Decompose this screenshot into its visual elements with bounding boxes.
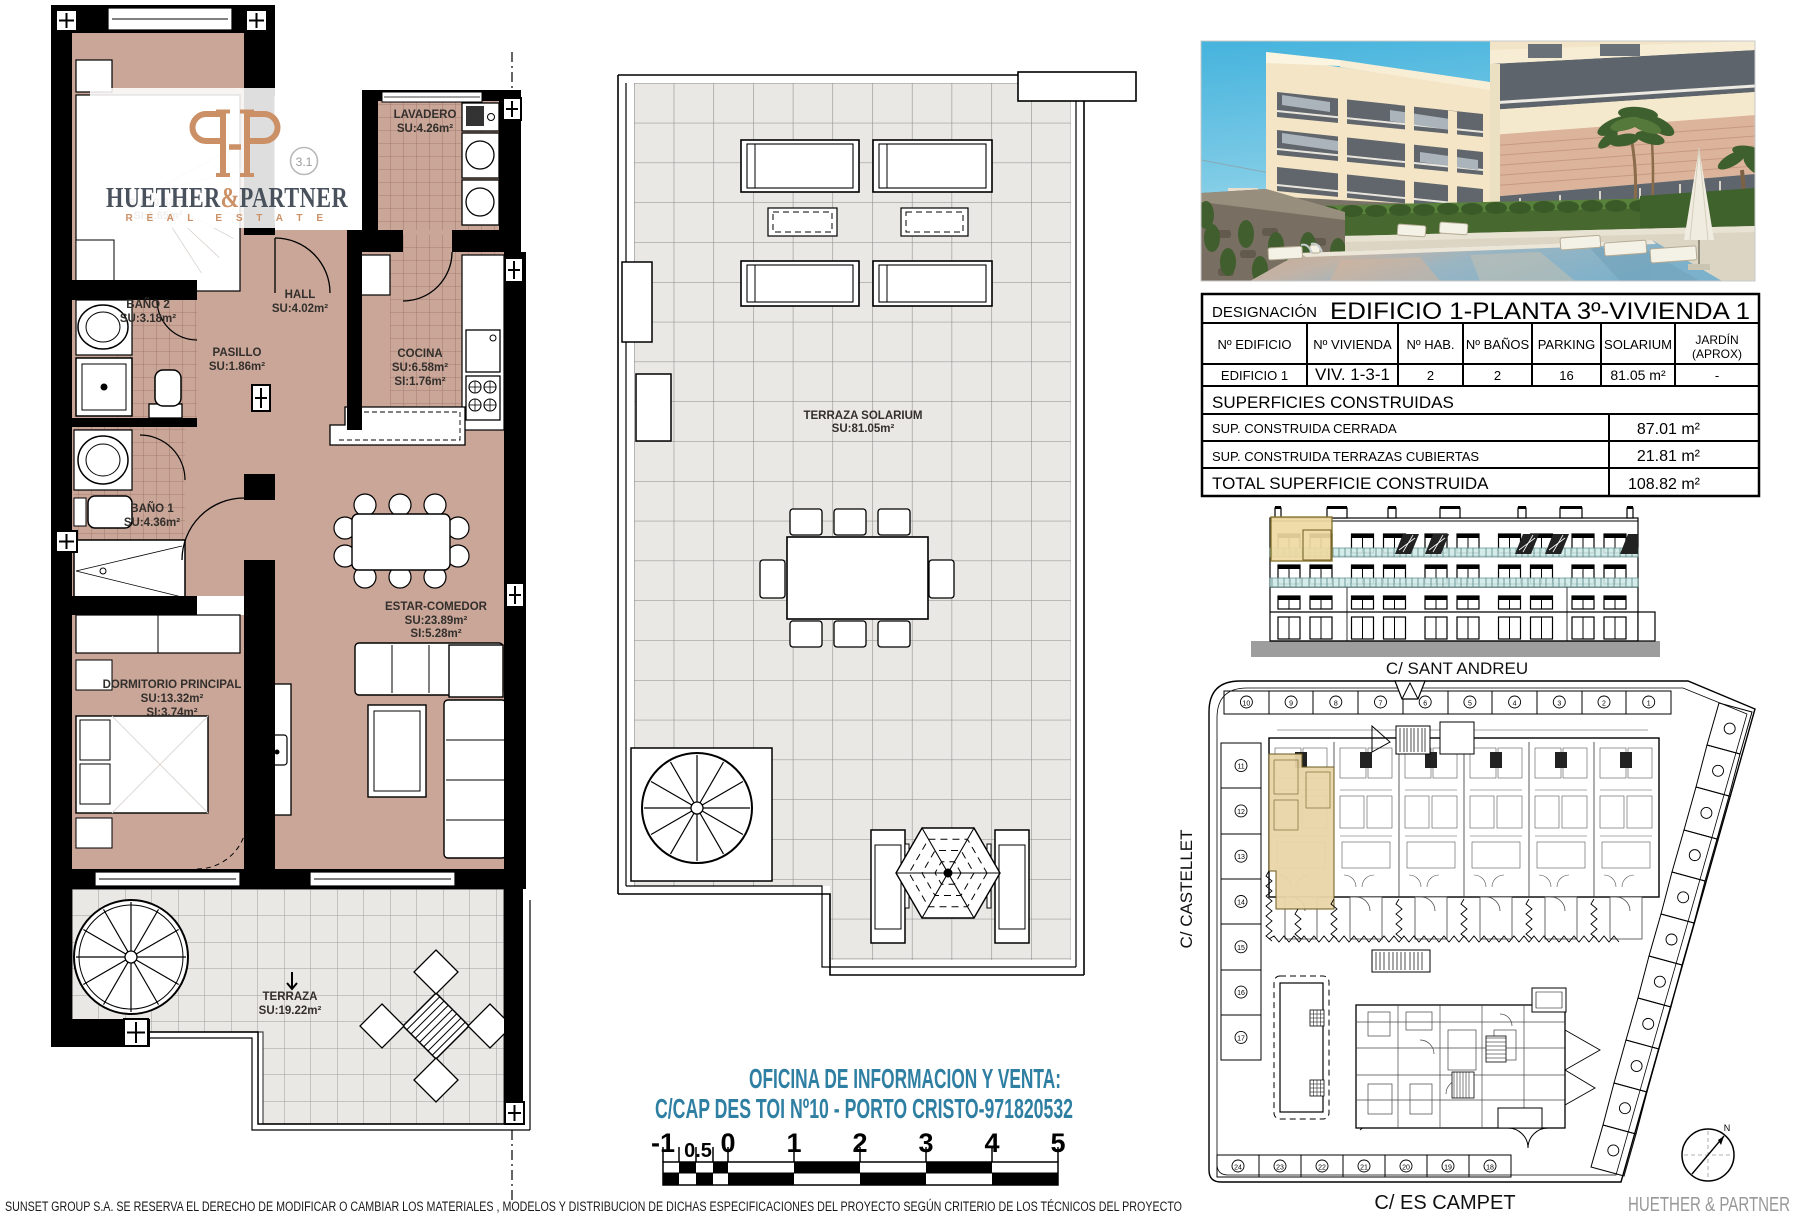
svg-text:15: 15 xyxy=(1237,945,1245,952)
svg-text:Nº HAB.: Nº HAB. xyxy=(1406,337,1454,352)
svg-text:TOTAL SUPERFICIE CONSTRUIDA: TOTAL SUPERFICIE CONSTRUIDA xyxy=(1212,474,1489,493)
svg-text:SI:1.76m²: SI:1.76m² xyxy=(394,376,445,388)
svg-text:R E A L E S T A T E: R E A L E S T A T E xyxy=(126,213,329,224)
svg-text:18: 18 xyxy=(1486,1165,1494,1172)
svg-text:PASILLO: PASILLO xyxy=(213,347,262,359)
svg-text:Nº EDIFICIO: Nº EDIFICIO xyxy=(1217,337,1291,352)
svg-text:BAÑO 2: BAÑO 2 xyxy=(126,298,169,311)
svg-text:7: 7 xyxy=(1379,701,1383,708)
svg-text:ESTAR-COMEDOR: ESTAR-COMEDOR xyxy=(385,601,488,613)
svg-text:HUETHER & PARTNER: HUETHER & PARTNER xyxy=(1628,1194,1790,1216)
svg-text:11: 11 xyxy=(1237,764,1244,771)
svg-text:SUP. CONSTRUIDA TERRAZAS CUBIE: SUP. CONSTRUIDA TERRAZAS CUBIERTAS xyxy=(1212,449,1479,464)
svg-text:0.5: 0.5 xyxy=(684,1140,712,1162)
svg-text:22: 22 xyxy=(1318,1165,1326,1172)
svg-text:SU:4.26m²: SU:4.26m² xyxy=(397,123,453,135)
svg-text:TERRAZA SOLARIUM: TERRAZA SOLARIUM xyxy=(803,410,922,422)
svg-text:HALL: HALL xyxy=(285,289,316,301)
svg-text:EDIFICIO 1-PLANTA 3º-VIVIENDA: EDIFICIO 1-PLANTA 3º-VIVIENDA 1 xyxy=(1330,298,1750,325)
svg-text:SUPERFICIES CONSTRUIDAS: SUPERFICIES CONSTRUIDAS xyxy=(1212,393,1454,412)
svg-text:2: 2 xyxy=(1602,701,1606,708)
svg-text:10: 10 xyxy=(1243,701,1251,708)
svg-text:N: N xyxy=(1724,1123,1731,1133)
svg-text:21: 21 xyxy=(1360,1165,1368,1172)
svg-text:19: 19 xyxy=(1444,1165,1452,1172)
svg-text:SI:5.28m²: SI:5.28m² xyxy=(410,628,461,640)
svg-text:3.1: 3.1 xyxy=(296,155,313,169)
svg-text:SU:1.86m²: SU:1.86m² xyxy=(209,361,265,373)
svg-text:PARKING: PARKING xyxy=(1538,337,1596,352)
svg-text:14: 14 xyxy=(1237,900,1245,907)
svg-text:SU:23.89m²: SU:23.89m² xyxy=(405,615,468,627)
svg-text:21.81 m²: 21.81 m² xyxy=(1637,448,1701,465)
svg-text:1: 1 xyxy=(1647,701,1651,708)
svg-text:3: 3 xyxy=(1557,701,1561,708)
svg-text:16: 16 xyxy=(1237,990,1245,997)
svg-text:9: 9 xyxy=(1289,701,1293,708)
svg-text:LAVADERO: LAVADERO xyxy=(394,109,457,121)
svg-text:DORMITORIO PRINCIPAL: DORMITORIO PRINCIPAL xyxy=(103,679,242,691)
svg-text:87.01 m²: 87.01 m² xyxy=(1637,421,1701,438)
svg-text:OFICINA DE INFORMACION Y VENTA: OFICINA DE INFORMACION Y VENTA: xyxy=(749,1063,1061,1094)
svg-text:SI:3.74m²: SI:3.74m² xyxy=(146,707,197,719)
svg-text:4: 4 xyxy=(1513,701,1517,708)
svg-text:108.82 m²: 108.82 m² xyxy=(1628,476,1701,493)
svg-text:C/CAP DES TOI Nº10 - PORTO CRI: C/CAP DES TOI Nº10 - PORTO CRISTO-971820… xyxy=(655,1093,1073,1124)
svg-text:12: 12 xyxy=(1237,809,1245,816)
svg-text:SU:3.18m²: SU:3.18m² xyxy=(120,313,176,325)
svg-text:SU:4.02m²: SU:4.02m² xyxy=(272,303,328,315)
svg-text:17: 17 xyxy=(1237,1035,1245,1042)
svg-text:BAÑO 1: BAÑO 1 xyxy=(130,502,174,515)
svg-text:DESIGNACIÓN: DESIGNACIÓN xyxy=(1212,304,1317,321)
svg-text:TERRAZA: TERRAZA xyxy=(263,991,318,1003)
svg-text:5: 5 xyxy=(1468,701,1472,708)
svg-text:SOLARIUM: SOLARIUM xyxy=(1604,337,1672,352)
svg-text:JARDÍN: JARDÍN xyxy=(1695,332,1738,347)
svg-text:SUNSET GROUP S.A. SE RESERVA E: SUNSET GROUP S.A. SE RESERVA EL DERECHO … xyxy=(5,1199,1182,1214)
svg-text:SU:13.32m²: SU:13.32m² xyxy=(141,693,204,705)
svg-text:SU:81.05m²: SU:81.05m² xyxy=(832,423,895,435)
svg-text:HUETHER&PARTNER: HUETHER&PARTNER xyxy=(106,182,348,214)
svg-text:8: 8 xyxy=(1334,701,1338,708)
svg-text:SU:6.58m²: SU:6.58m² xyxy=(392,362,448,374)
svg-text:VIV. 1-3-1: VIV. 1-3-1 xyxy=(1315,365,1390,384)
svg-text:(APROX): (APROX) xyxy=(1692,347,1742,361)
svg-text:-: - xyxy=(1715,368,1719,383)
svg-text:C/ SANT ANDREU: C/ SANT ANDREU xyxy=(1386,659,1528,678)
svg-text:Nº VIVIENDA: Nº VIVIENDA xyxy=(1313,337,1392,352)
svg-text:24: 24 xyxy=(1234,1165,1242,1172)
svg-text:SU:19.22m²: SU:19.22m² xyxy=(259,1005,322,1017)
svg-text:C/ CASTELLET: C/ CASTELLET xyxy=(1177,829,1196,948)
svg-text:C/ ES CAMPET: C/ ES CAMPET xyxy=(1374,1192,1515,1214)
svg-text:Nº BAÑOS: Nº BAÑOS xyxy=(1466,337,1530,352)
svg-text:2: 2 xyxy=(1427,368,1434,383)
svg-text:2: 2 xyxy=(1494,368,1501,383)
svg-text:16: 16 xyxy=(1559,368,1573,383)
svg-text:13: 13 xyxy=(1237,854,1245,861)
svg-text:SUP. CONSTRUIDA CERRADA: SUP. CONSTRUIDA CERRADA xyxy=(1212,421,1397,436)
svg-text:COCINA: COCINA xyxy=(397,348,442,360)
svg-text:20: 20 xyxy=(1402,1165,1410,1172)
svg-text:23: 23 xyxy=(1276,1165,1284,1172)
svg-text:6: 6 xyxy=(1423,701,1427,708)
svg-text:81.05 m²: 81.05 m² xyxy=(1610,367,1666,383)
svg-text:EDIFICIO 1: EDIFICIO 1 xyxy=(1221,368,1288,383)
svg-text:SU:4.36m²: SU:4.36m² xyxy=(124,517,180,529)
